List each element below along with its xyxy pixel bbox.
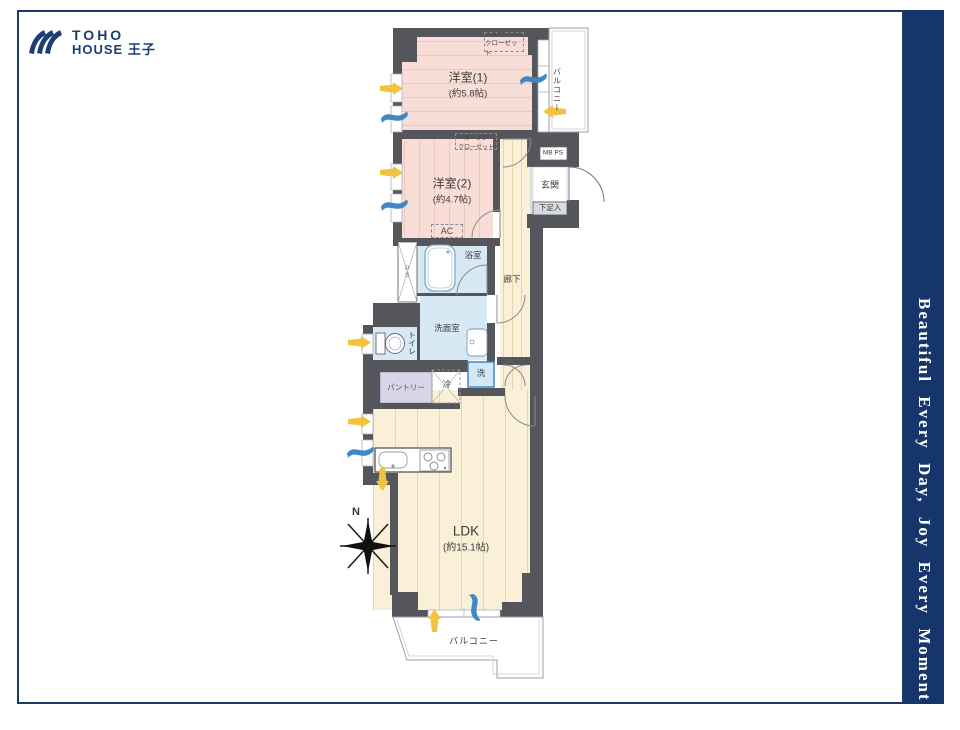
- room-western1-size: (約5.8帖): [449, 90, 488, 101]
- room-western2-size: (約4.7帖): [433, 196, 472, 207]
- meter-box-label: MB PS: [543, 149, 563, 156]
- open-closet-box-2: オープン クローゼット: [455, 133, 497, 150]
- open-closet-2-line1: オープン: [464, 133, 488, 142]
- balcony-bottom-area: [393, 617, 543, 678]
- corridor-label: 廊下: [503, 275, 520, 285]
- washroom-label: 洗面室: [434, 324, 460, 334]
- toilet-label: トイレ: [407, 331, 416, 355]
- entrance-label: 玄関: [541, 180, 559, 190]
- ac-label: AC: [441, 226, 454, 236]
- room-ldk-label: LDK: [453, 523, 479, 538]
- bath-label: 浴室: [464, 251, 481, 261]
- room-ldk-size: (約15.1帖): [443, 542, 489, 553]
- room-western2-label: 洋室(2): [433, 177, 472, 190]
- pipe-space-label: PS: [403, 265, 410, 279]
- washer-label: 洗: [477, 369, 486, 379]
- open-closet-1-line1: オープン: [491, 27, 517, 37]
- washbasin-icon: [467, 329, 487, 356]
- open-closet-1-line2: クローゼット: [485, 37, 523, 57]
- kitchen-counter-icon: [375, 448, 451, 472]
- open-closet-box-1: オープン クローゼット: [484, 32, 524, 52]
- floorplan-drawing: [0, 0, 960, 720]
- pantry-label: パントリー: [387, 384, 425, 392]
- balcony-bottom-label: バルコニー: [449, 636, 499, 646]
- ac-box: AC: [431, 224, 463, 238]
- balcony-top-label: バルコニー: [552, 68, 561, 113]
- bathtub-icon: [425, 245, 455, 291]
- room-western1-label: 洋室(1): [449, 71, 488, 84]
- toilet-icon: [376, 333, 405, 354]
- fridge-label: 冷: [443, 380, 452, 390]
- compass-north-label: N: [352, 506, 360, 518]
- open-closet-2-line2: クローゼット: [458, 142, 494, 151]
- shoe-box-label: 下足入: [539, 204, 562, 212]
